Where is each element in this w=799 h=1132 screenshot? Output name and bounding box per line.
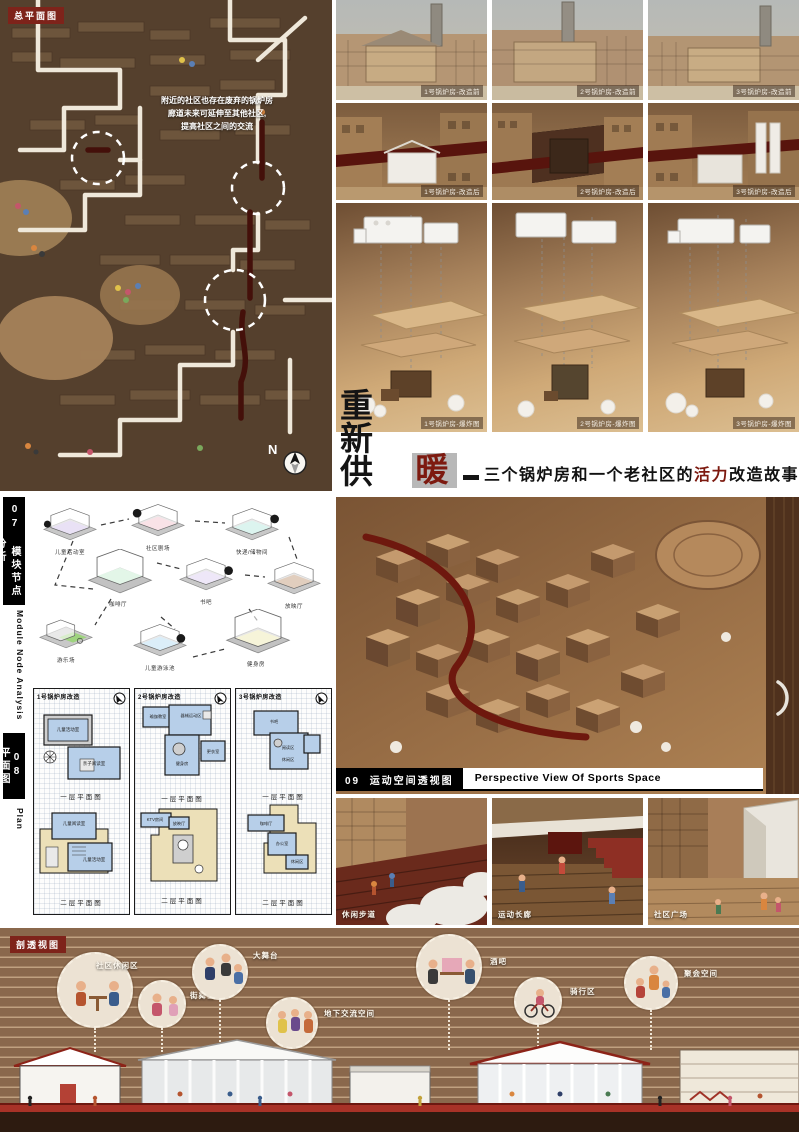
bubble-label: 聚会空间 (684, 968, 718, 979)
render-label: 运动长廊 (498, 909, 532, 920)
floor1-caption: 一层平面图 (34, 791, 129, 801)
site-plan-drawing: N (0, 0, 332, 491)
plan-floor1-drawing: 书吧 阅读区 休闲区 (240, 705, 329, 789)
module-item: 快递/储物间 (219, 505, 285, 556)
photo-boiler2-after: 2号锅炉房-改造后 (492, 103, 643, 200)
photo-caption: 1号锅炉房-爆炸图 (421, 417, 483, 429)
module-item: 放映厅 (261, 559, 327, 610)
floor1-caption: 一层平面图 (236, 791, 331, 801)
bubble-figures (626, 958, 678, 1010)
module-axon (126, 501, 190, 541)
plan-col-boiler3: 3号锅炉房改造 书吧 阅读区 休闲区 一层平面图 咖啡厅 (235, 688, 332, 915)
sports-num: 09 (345, 776, 360, 787)
render-community-plaza: 社区广场 (648, 798, 799, 925)
subtitle-pre: 三个锅炉房和一个老社区的 (484, 467, 694, 484)
module-item: 儿童游泳池 (127, 621, 193, 672)
photo-caption: 2号锅炉房-爆炸图 (577, 417, 639, 429)
module-node-analysis: 儿童活动室 社区剧场 快递/储物间 (33, 497, 332, 684)
room-label: 更衣室 (207, 748, 220, 755)
bubble-figures (194, 946, 248, 1000)
photo-caption: 3号锅炉房-改造后 (733, 185, 795, 197)
module-axon (38, 505, 102, 545)
module-label: 健身房 (223, 660, 289, 668)
room-label: 器械运动区 (181, 712, 202, 719)
sports-model-art (336, 497, 799, 794)
sidebar-section-07-en: Module Node Analysis (3, 605, 25, 725)
site-plan-note: 附近的社区也存在废弃的锅炉房 廊道未来可延伸至其他社区, 提高社区之间的交流 (122, 95, 312, 133)
axon-boiler3-exploded: 3号锅炉房-爆炸图 (648, 203, 799, 432)
title-subtitle: 三个锅炉房和一个老社区的活力改造故事 (484, 461, 799, 485)
module-label: 儿童游泳池 (127, 664, 193, 672)
sidebar: 07 模块节点分析 Module Node Analysis 08 平面图 Pl… (3, 497, 31, 839)
bubble-gathering (624, 956, 678, 1010)
plan-floor2-drawing: KTV房间 放映厅 (139, 805, 228, 891)
subtitle-accent: 活力 (694, 467, 729, 484)
plan-title: 2号锅炉房改造 (138, 692, 181, 701)
bubble-label: 大舞台 (253, 950, 279, 961)
module-item: 咖啡厅 (85, 549, 151, 608)
plan-section: 1号锅炉房改造 儿童活动室 亲子阅读室 一层平面图 (33, 688, 332, 915)
sports-perspective-panel: 09 运动空间透视图 Perspective View Of Sports Sp… (336, 497, 799, 794)
note-line: 提高社区之间的交流 (122, 121, 312, 134)
room-label: 放映厅 (173, 820, 186, 827)
module-axon (220, 505, 284, 545)
section-perspective-panel: 剖透视图 社区休闲区 街舞区 大舞台 (0, 928, 799, 1132)
photo-boiler2-before: 2号锅炉房-改造前 (492, 0, 643, 100)
module-label: 咖啡厅 (85, 600, 151, 608)
plan-title: 3号锅炉房改造 (239, 692, 282, 701)
module-item: 健身房 (223, 609, 289, 668)
room-label: 儿童阅读室 (63, 820, 86, 827)
module-axon (128, 621, 192, 661)
photo-boiler3-before: 3号锅炉房-改造前 (648, 0, 799, 100)
sidebar-section-08: 08 平面图 (3, 733, 25, 799)
plan-floor2-drawing: 儿童阅读室 儿童活动室 (38, 803, 127, 895)
bubble-bar (416, 934, 482, 1000)
room-label: 儿童活动室 (83, 856, 106, 863)
plan-title: 1号锅炉房改造 (37, 692, 80, 701)
bubble-figures (418, 936, 482, 1000)
photo-caption: 1号锅炉房-改造后 (421, 185, 483, 197)
bubble-figures (516, 979, 562, 1025)
north-arrow-icon (113, 692, 126, 705)
module-axon (262, 559, 326, 599)
room-label: 瑜伽教室 (150, 713, 167, 720)
photo-boiler1-before: 1号锅炉房-改造前 (336, 0, 487, 100)
photo-caption: 3号锅炉房-改造前 (733, 85, 795, 97)
bubble-label: 地下交流空间 (324, 1008, 375, 1019)
room-label: 阅读区 (282, 744, 295, 751)
bubble-label: 社区休闲区 (96, 960, 139, 971)
north-arrow-icon (315, 692, 328, 705)
title-main: 重新供 (340, 389, 410, 488)
bubble-dance (138, 980, 186, 1028)
module-item: 游乐场 (33, 613, 99, 664)
sports-caption-cn: 09 运动空间透视图 (336, 768, 463, 791)
room-label: 儿童活动室 (57, 726, 80, 733)
module-axon (34, 613, 98, 653)
photo-caption: 1号锅炉房-改造前 (421, 85, 483, 97)
bubble-cycling (514, 977, 562, 1025)
render-art (648, 798, 799, 925)
bubble-label: 骑行区 (570, 986, 596, 997)
subtitle-post: 改造故事 (729, 467, 799, 484)
sidebar-section-07: 07 模块节点分析 (3, 497, 25, 605)
presentation-board: N 总平面图 附近的社区也存在废弃的锅炉房 廊道未来可延伸至其他社区, 提高社区… (0, 0, 799, 1132)
photo-caption: 2号锅炉房-改造前 (577, 85, 639, 97)
bubble-label: 酒吧 (490, 956, 507, 967)
sidebar-section-08-en: Plan (3, 799, 25, 839)
room-label: 休闲区 (291, 858, 304, 865)
room-label: 健身房 (176, 760, 189, 767)
render-sports-corridor: 运动长廊 (492, 798, 643, 925)
axon-boiler2-exploded: 2号锅炉房-爆炸图 (492, 203, 643, 432)
render-art (336, 798, 487, 925)
photo-boiler3-after: 3号锅炉房-改造后 (648, 103, 799, 200)
site-plan-tag: 总平面图 (8, 7, 64, 24)
render-art (492, 798, 643, 925)
photo-caption: 3号锅炉房-爆炸图 (733, 417, 795, 429)
render-row: 休闲步道 运动长廊 (336, 798, 799, 925)
note-line: 廊道未来可延伸至其他社区, (122, 108, 312, 121)
render-leisure-path: 休闲步道 (336, 798, 487, 925)
plan-col-boiler2: 2号锅炉房改造 瑜伽教室 器械运动区 健身房 更衣室 一层平面图 (134, 688, 231, 915)
exploded-axon-art (648, 203, 799, 432)
title-dash (463, 475, 479, 480)
floor1-caption: 一层平面图 (135, 793, 230, 803)
sports-cn-text: 运动空间透视图 (370, 776, 454, 787)
exploded-axon-art (492, 203, 643, 432)
floor2-caption: 二层平面图 (34, 897, 129, 907)
floor2-caption: 二层平面图 (135, 895, 230, 905)
module-axon (223, 609, 293, 657)
room-label: KTV房间 (147, 816, 164, 823)
section-view-tag: 剖透视图 (10, 936, 66, 953)
compass-icon (284, 452, 306, 474)
photo-boiler1-after: 1号锅炉房-改造后 (336, 103, 487, 200)
section-elevation (0, 1036, 799, 1132)
title-highlight: 暖 (412, 453, 457, 488)
plan-floor1-drawing: 瑜伽教室 器械运动区 健身房 更衣室 (139, 703, 228, 791)
plan-floor2-drawing: 咖啡厅 办公室 休闲区 (240, 803, 329, 895)
floor2-caption: 二层平面图 (236, 897, 331, 907)
bubble-figures (140, 982, 186, 1028)
room-label: 亲子阅读室 (83, 760, 106, 767)
sports-caption-en: Perspective View Of Sports Space (463, 768, 763, 791)
module-axon (85, 549, 155, 597)
note-line: 附近的社区也存在废弃的锅炉房 (122, 95, 312, 108)
module-label: 游乐场 (33, 656, 99, 664)
room-label: 办公室 (276, 840, 289, 847)
bubble-stage (192, 944, 248, 1000)
photo-caption: 2号锅炉房-改造后 (577, 185, 639, 197)
module-label: 书吧 (173, 598, 239, 606)
room-label: 咖啡厅 (260, 820, 273, 827)
sports-caption-bar: 09 运动空间透视图 Perspective View Of Sports Sp… (336, 768, 763, 791)
site-plan-panel: N 总平面图 附近的社区也存在废弃的锅炉房 廊道未来可延伸至其他社区, 提高社区… (0, 0, 332, 491)
plan-col-boiler1: 1号锅炉房改造 儿童活动室 亲子阅读室 一层平面图 (33, 688, 130, 915)
module-item: 书吧 (173, 555, 239, 606)
render-label: 社区广场 (654, 909, 688, 920)
photo-grid: 1号锅炉房-改造前 2号锅炉房-改造前 (336, 0, 799, 432)
room-label: 休闲区 (282, 756, 295, 763)
module-item: 社区剧场 (125, 501, 191, 552)
module-axon (174, 555, 238, 595)
render-label: 休闲步道 (342, 909, 376, 920)
title-banner: 重新供 暖 三个锅炉房和一个老社区的活力改造故事 (336, 438, 799, 494)
room-label: 书吧 (270, 718, 279, 725)
north-letter: N (268, 442, 277, 457)
plan-floor1-drawing: 儿童活动室 亲子阅读室 (38, 705, 127, 789)
